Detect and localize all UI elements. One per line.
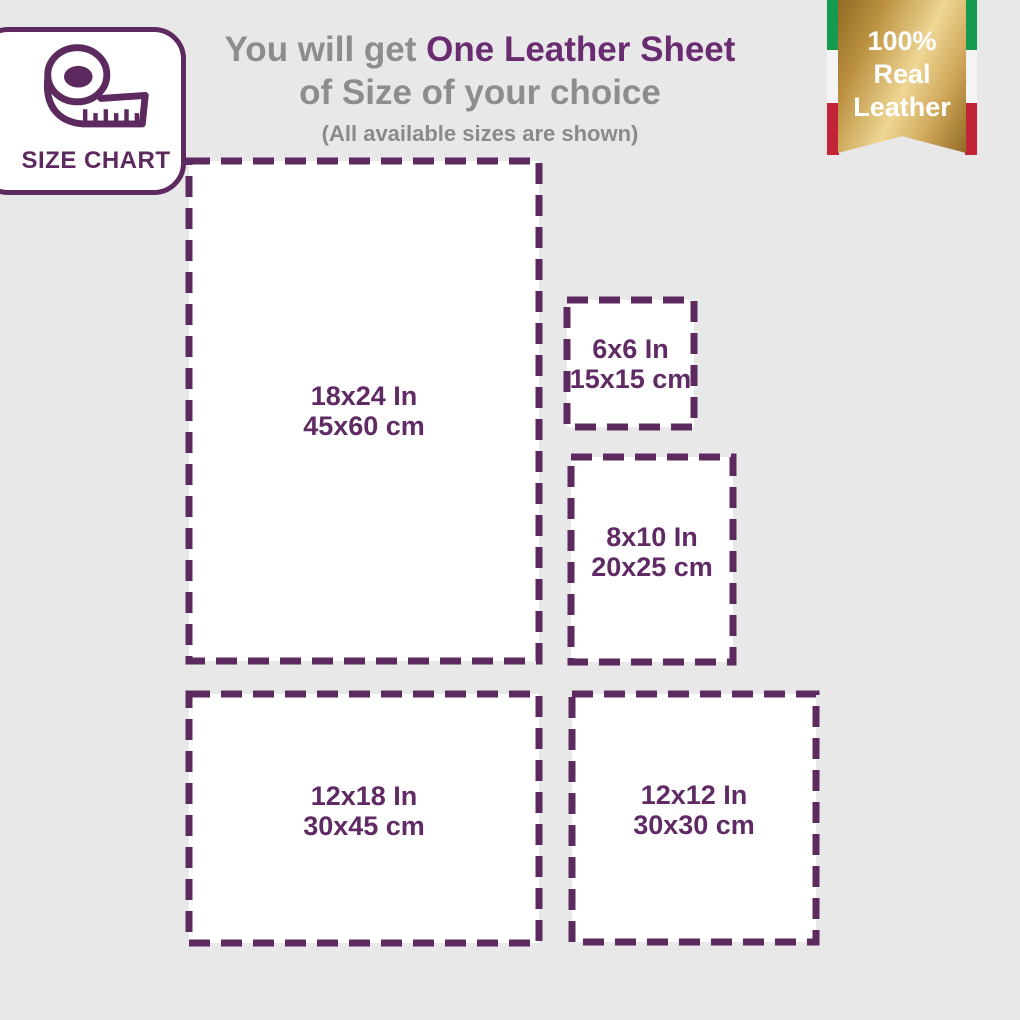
flag-stripe-right	[965, 0, 977, 155]
size-box-12x12: 12x12 In 30x30 cm	[568, 690, 820, 946]
ribbon-line-percent: 100%	[867, 25, 936, 58]
flag-green-segment	[827, 0, 839, 50]
flag-stripe-left	[827, 0, 839, 155]
size-cm: 20x25 cm	[591, 552, 713, 582]
size-cm: 30x30 cm	[633, 810, 755, 840]
ribbon-line-real: Real	[873, 58, 930, 91]
size-chart-infographic: SIZE CHART You will get One Leather Shee…	[0, 0, 1020, 1020]
size-label-12x18: 12x18 In 30x45 cm	[185, 682, 543, 939]
real-leather-ribbon: 100% Real Leather	[827, 0, 977, 162]
size-box-8x10: 8x10 In 20x25 cm	[567, 453, 737, 666]
title-line-1: You will get One Leather Sheet	[150, 28, 810, 71]
size-box-12x18: 12x18 In 30x45 cm	[185, 690, 543, 947]
size-cm: 45x60 cm	[303, 411, 425, 441]
size-chart-badge: SIZE CHART	[0, 27, 186, 195]
flag-red-segment	[827, 103, 839, 155]
flag-red-segment	[965, 103, 977, 155]
flag-white-segment	[965, 50, 977, 103]
measuring-tape-icon	[32, 44, 160, 143]
size-cm: 30x45 cm	[303, 811, 425, 841]
gold-banner: 100% Real Leather	[838, 0, 966, 153]
size-label-12x12: 12x12 In 30x30 cm	[568, 682, 820, 938]
size-cm: 15x15 cm	[570, 364, 692, 394]
page-title: You will get One Leather Sheet of Size o…	[150, 28, 810, 147]
size-label-8x10: 8x10 In 20x25 cm	[567, 445, 737, 658]
size-box-18x24: 18x24 In 45x60 cm	[185, 157, 543, 665]
title-line-2: of Size of your choice	[150, 71, 810, 114]
ribbon-line-leather: Leather	[853, 91, 951, 124]
size-label-18x24: 18x24 In 45x60 cm	[185, 157, 543, 665]
title-note: (All available sizes are shown)	[150, 121, 810, 147]
size-chart-label: SIZE CHART	[22, 147, 171, 175]
title-highlight: One Leather Sheet	[426, 30, 735, 69]
size-box-6x6: 6x6 In 15x15 cm	[563, 296, 698, 431]
size-label-6x6: 6x6 In 15x15 cm	[563, 296, 698, 431]
size-inches: 12x12 In	[641, 780, 748, 810]
title-gray-text: You will get	[225, 30, 417, 69]
flag-green-segment	[965, 0, 977, 50]
size-inches: 18x24 In	[311, 381, 418, 411]
size-inches: 12x18 In	[311, 781, 418, 811]
flag-white-segment	[827, 50, 839, 103]
size-inches: 8x10 In	[606, 522, 698, 552]
size-inches: 6x6 In	[592, 334, 669, 364]
